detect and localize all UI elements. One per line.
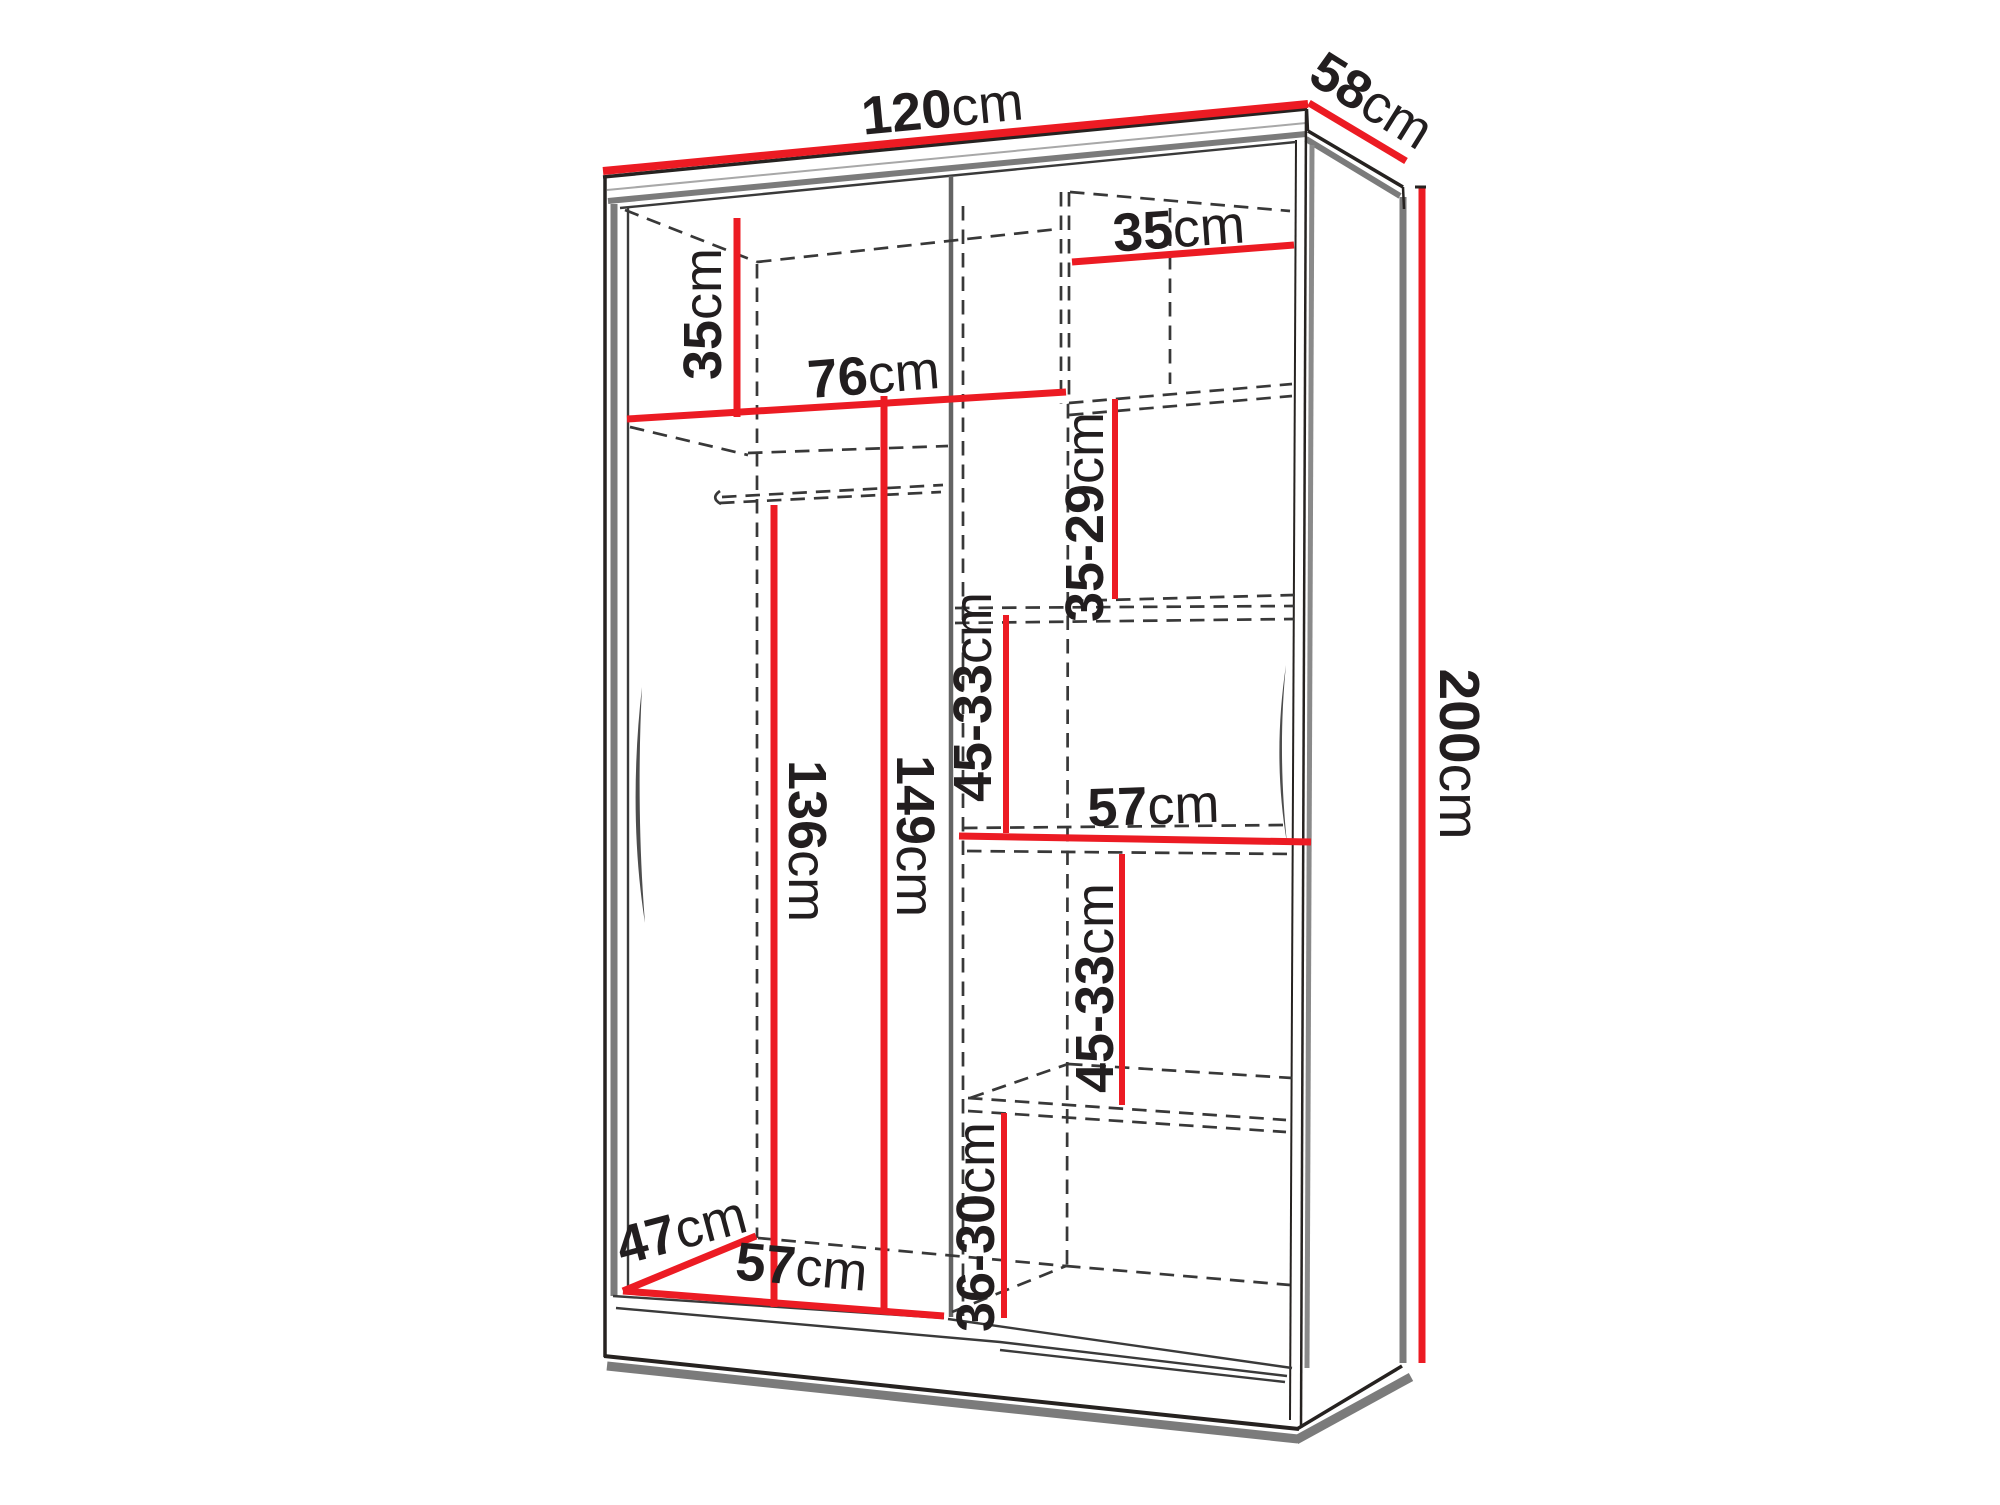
svg-text:76cm: 76cm [805,340,941,410]
svg-text:35cm: 35cm [673,248,733,380]
svg-text:136cm: 136cm [777,760,837,922]
svg-text:57cm: 57cm [1086,774,1220,839]
svg-text:36-30cm: 36-30cm [946,1122,1006,1332]
svg-text:35cm: 35cm [1111,195,1247,264]
svg-text:45-33cm: 45-33cm [943,592,1003,802]
svg-text:57cm: 57cm [733,1231,870,1302]
svg-text:149cm: 149cm [885,755,945,917]
svg-text:45-33cm: 45-33cm [1065,883,1125,1093]
svg-text:200cm: 200cm [1427,668,1491,839]
svg-text:35-29cm: 35-29cm [1055,412,1115,622]
